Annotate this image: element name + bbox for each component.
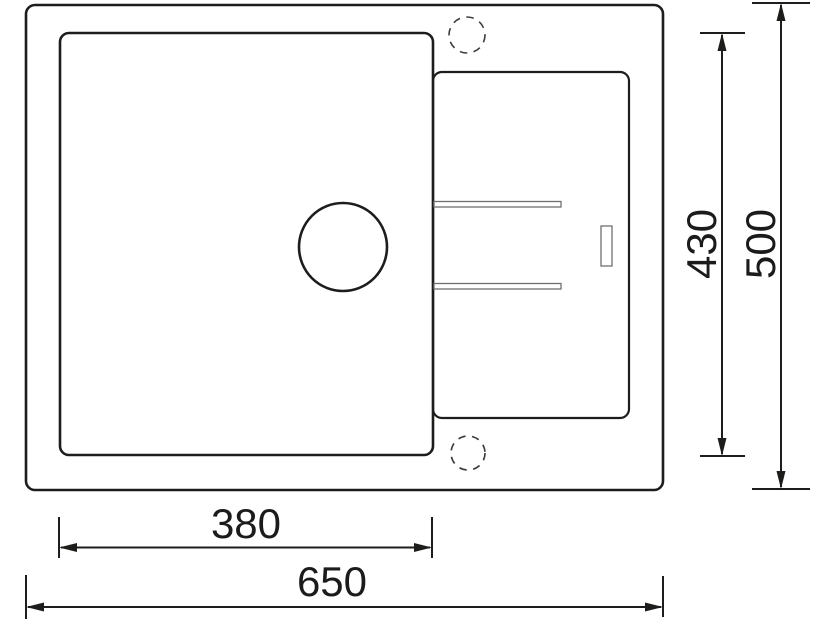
sink-technical-drawing: 380 650 430 500 (0, 0, 826, 620)
dimension-overall-length: 500 (737, 3, 810, 489)
arrowhead-up-icon (718, 33, 727, 51)
dimension-overall-width: 650 (26, 558, 663, 619)
dimension-label-500: 500 (737, 209, 784, 279)
drainer-groove-upper (434, 202, 561, 208)
dimension-label-430: 430 (678, 209, 725, 279)
dimension-inner-length: 430 (678, 33, 745, 456)
tap-hole-top-dashed-circle (449, 17, 485, 53)
dimension-bowl-width: 380 (59, 500, 432, 558)
drainer-groove-lower (434, 284, 561, 290)
arrowhead-right-icon (645, 603, 663, 612)
arrowhead-left-icon (59, 543, 77, 552)
overflow-slot (601, 226, 612, 266)
arrowhead-right-icon (414, 543, 432, 552)
dimension-label-380: 380 (211, 500, 281, 547)
drainer-outline (433, 72, 629, 418)
drawing-canvas: 380 650 430 500 (0, 0, 826, 620)
tap-hole-bottom-dashed-circle (451, 436, 485, 470)
bowl-outline (60, 33, 433, 455)
arrowhead-down-icon (777, 471, 786, 489)
dimension-label-650: 650 (297, 558, 367, 605)
arrowhead-down-icon (718, 438, 727, 456)
arrowhead-left-icon (26, 603, 44, 612)
drain-hole-circle (299, 203, 387, 291)
arrowhead-up-icon (777, 3, 786, 21)
